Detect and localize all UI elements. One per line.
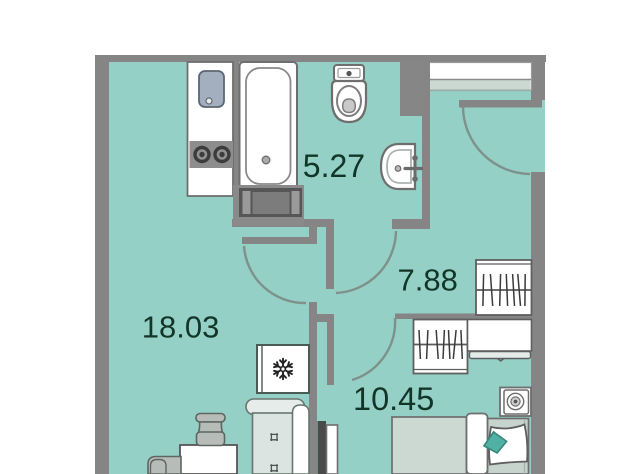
- svg-text:5.27: 5.27: [303, 148, 365, 184]
- svg-text:10.45: 10.45: [353, 381, 434, 417]
- svg-text:7.88: 7.88: [398, 263, 458, 298]
- svg-text:18.03: 18.03: [142, 310, 220, 345]
